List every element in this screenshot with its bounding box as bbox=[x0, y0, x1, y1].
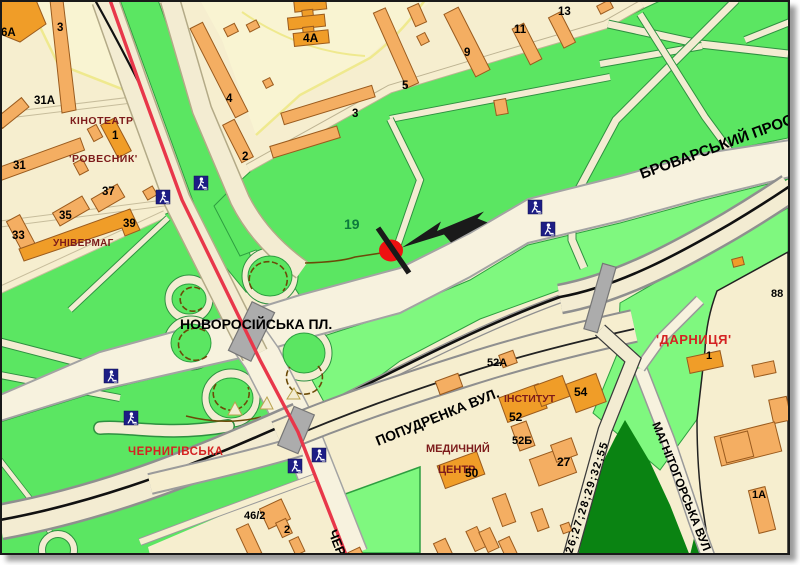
svg-text:52Б: 52Б bbox=[512, 435, 532, 447]
svg-text:46/2: 46/2 bbox=[244, 510, 265, 522]
svg-text:1А: 1А bbox=[752, 489, 766, 501]
svg-text:19: 19 bbox=[344, 216, 360, 232]
svg-text:2: 2 bbox=[242, 151, 248, 163]
svg-text:31А: 31А bbox=[34, 95, 55, 107]
svg-text:ЧЕРНИГІВСЬКА: ЧЕРНИГІВСЬКА bbox=[128, 446, 223, 458]
svg-text:52А: 52А bbox=[487, 357, 507, 369]
svg-text:3: 3 bbox=[352, 108, 358, 120]
svg-text:31: 31 bbox=[13, 160, 26, 172]
svg-text:КІНОТЕАТР: КІНОТЕАТР bbox=[70, 115, 133, 127]
svg-text:НОВОРОСІЙСЬКА ПЛ.: НОВОРОСІЙСЬКА ПЛ. bbox=[180, 315, 332, 332]
svg-text:35: 35 bbox=[59, 210, 72, 222]
svg-text:5: 5 bbox=[402, 80, 409, 92]
svg-text:54: 54 bbox=[574, 385, 588, 399]
svg-text:'РОВЕСНИК': 'РОВЕСНИК' bbox=[69, 153, 138, 165]
svg-text:'ДАРНИЦЯ': 'ДАРНИЦЯ' bbox=[656, 332, 732, 347]
svg-text:3: 3 bbox=[57, 22, 63, 34]
svg-text:50: 50 bbox=[465, 466, 479, 480]
svg-text:88: 88 bbox=[771, 288, 783, 300]
svg-text:УНІВЕРМАГ: УНІВЕРМАГ bbox=[53, 238, 114, 249]
svg-text:1: 1 bbox=[112, 130, 119, 142]
svg-text:13: 13 bbox=[558, 6, 571, 18]
svg-text:4А: 4А bbox=[303, 31, 319, 45]
svg-text:11: 11 bbox=[514, 24, 527, 36]
svg-text:1: 1 bbox=[706, 350, 712, 362]
svg-text:27: 27 bbox=[557, 455, 571, 469]
svg-text:6А: 6А bbox=[1, 27, 16, 39]
svg-text:37: 37 bbox=[102, 186, 115, 198]
svg-text:33: 33 bbox=[12, 230, 25, 242]
svg-text:39: 39 bbox=[123, 218, 136, 230]
svg-text:4: 4 bbox=[226, 93, 233, 105]
svg-text:2: 2 bbox=[284, 524, 290, 536]
svg-text:ІНСТИТУТ: ІНСТИТУТ bbox=[504, 393, 556, 405]
svg-text:52: 52 bbox=[509, 410, 523, 424]
svg-text:9: 9 bbox=[464, 47, 470, 59]
svg-text:МЕДИЧНИЙ: МЕДИЧНИЙ bbox=[426, 442, 490, 455]
